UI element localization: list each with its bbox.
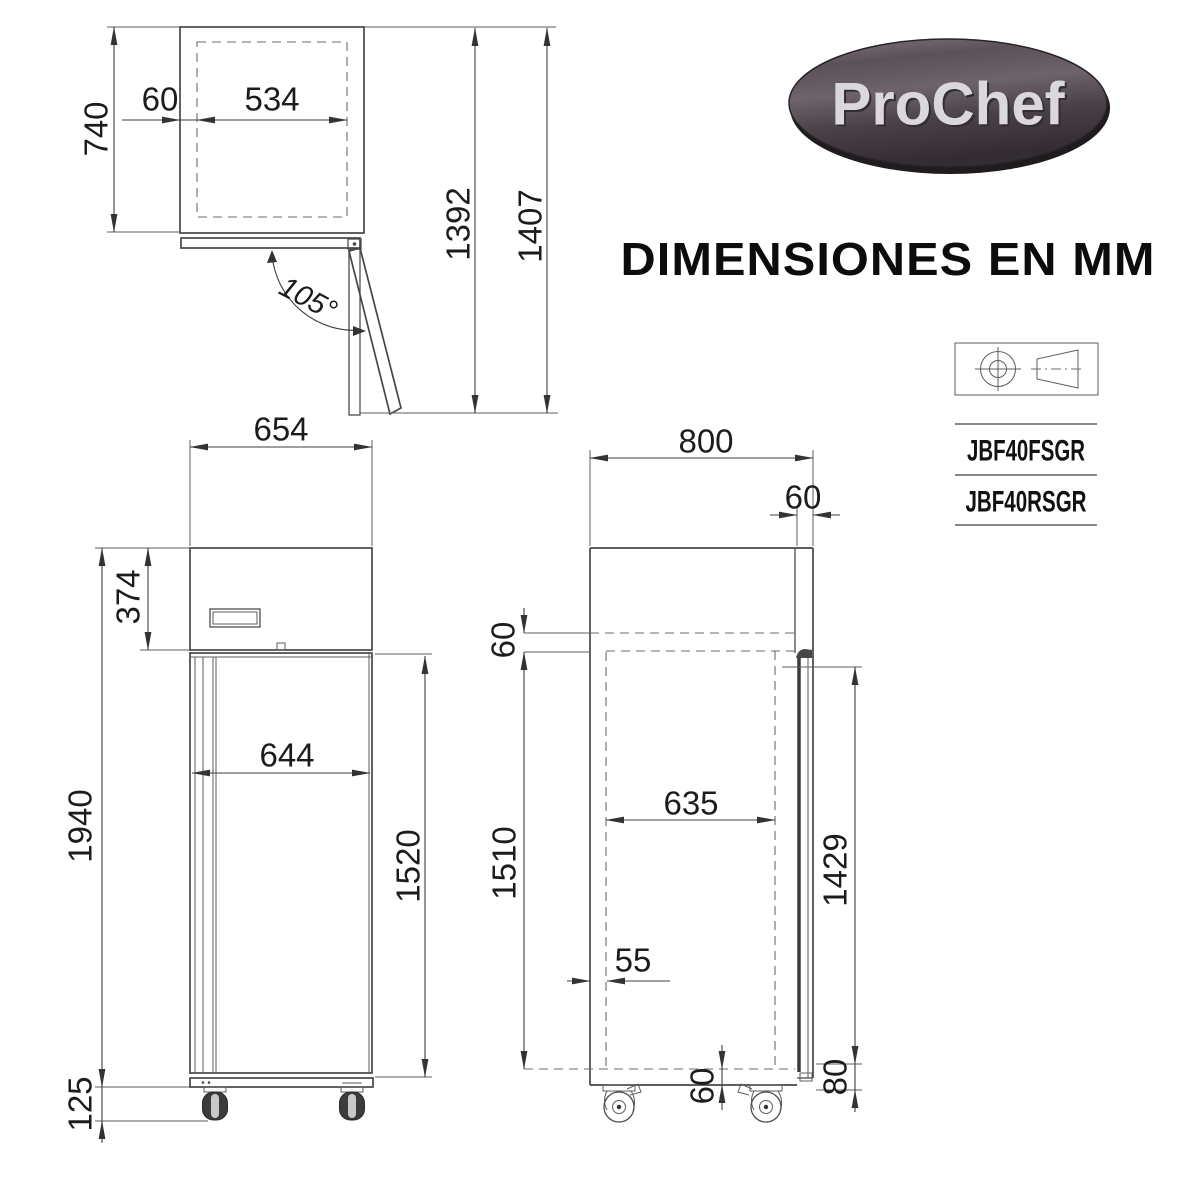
top-view-interior-dashed <box>197 42 347 217</box>
model-number-1: JBF40FSGR <box>967 435 1085 468</box>
arc-arrow-top <box>267 250 277 263</box>
dim-1520-label: 1520 <box>390 829 427 902</box>
dim-374-label: 374 <box>110 569 147 624</box>
side-caster-left <box>603 1084 641 1122</box>
base-bolt <box>208 1081 211 1084</box>
brand-logo: ProChef ProChef <box>789 39 1110 174</box>
logo-text: ProChef <box>831 71 1065 138</box>
caster-wheel-center <box>348 1094 356 1118</box>
dimension-drawing: 105° 740 60 534 1392 1407 654 <box>0 0 1200 1200</box>
door-lock <box>277 643 285 650</box>
dim-1429-label: 1429 <box>817 833 854 906</box>
door-foot <box>800 1073 812 1081</box>
dim-60-thickness-label: 60 <box>785 479 822 516</box>
dim-534-label: 534 <box>244 81 299 118</box>
caster-hub <box>617 1105 621 1109</box>
dim-644-label: 644 <box>259 737 314 774</box>
dim-55-label: 55 <box>615 942 652 979</box>
front-caster-left <box>203 1087 228 1120</box>
front-header <box>190 548 372 650</box>
front-door <box>190 653 372 1073</box>
dim-740-label: 740 <box>78 101 115 156</box>
front-caster-right <box>340 1087 365 1120</box>
model-table: JBF40FSGR JBF40RSGR <box>955 424 1097 525</box>
technical-drawing-page: 105° 740 60 534 1392 1407 654 <box>0 0 1200 1200</box>
side-caster-right <box>738 1084 782 1122</box>
top-view-cabinet-outline <box>180 27 364 233</box>
caster-hub <box>764 1105 768 1109</box>
dim-60-clearance-label: 60 <box>485 622 522 659</box>
dim-80-label: 80 <box>817 1059 854 1096</box>
dim-800-label: 800 <box>678 423 733 460</box>
page-title: DIMENSIONES EN MM <box>621 233 1156 285</box>
top-view: 105° 740 60 534 1392 1407 <box>78 27 559 415</box>
control-display-inner <box>213 612 257 624</box>
caster-bracket <box>750 1085 782 1091</box>
dim-125-label: 125 <box>62 1076 99 1131</box>
model-number-2: JBF40RSGR <box>966 486 1087 519</box>
caster-wheel-center <box>211 1094 219 1118</box>
dim-635-label: 635 <box>663 785 718 822</box>
projection-symbol <box>955 343 1098 395</box>
front-view: 654 374 644 1520 1940 125 <box>62 411 433 1144</box>
top-view-closed-door <box>181 238 360 248</box>
dim-1510-label: 1510 <box>486 826 523 899</box>
dim-door-angle-label: 105° <box>274 271 342 327</box>
side-view: 800 60 60 1510 635 <box>485 423 863 1123</box>
dim-1392-label: 1392 <box>440 187 477 260</box>
dim-1407-label: 1407 <box>512 189 549 262</box>
dim-60-bottom-label: 60 <box>684 1068 721 1105</box>
dim-1940-label: 1940 <box>62 789 99 862</box>
base-bolt <box>202 1081 205 1084</box>
top-view-hinge-pin <box>353 242 357 246</box>
dim-60-inset-label: 60 <box>142 81 179 118</box>
door-top-seal <box>796 649 812 658</box>
dim-654-label: 654 <box>253 411 308 448</box>
